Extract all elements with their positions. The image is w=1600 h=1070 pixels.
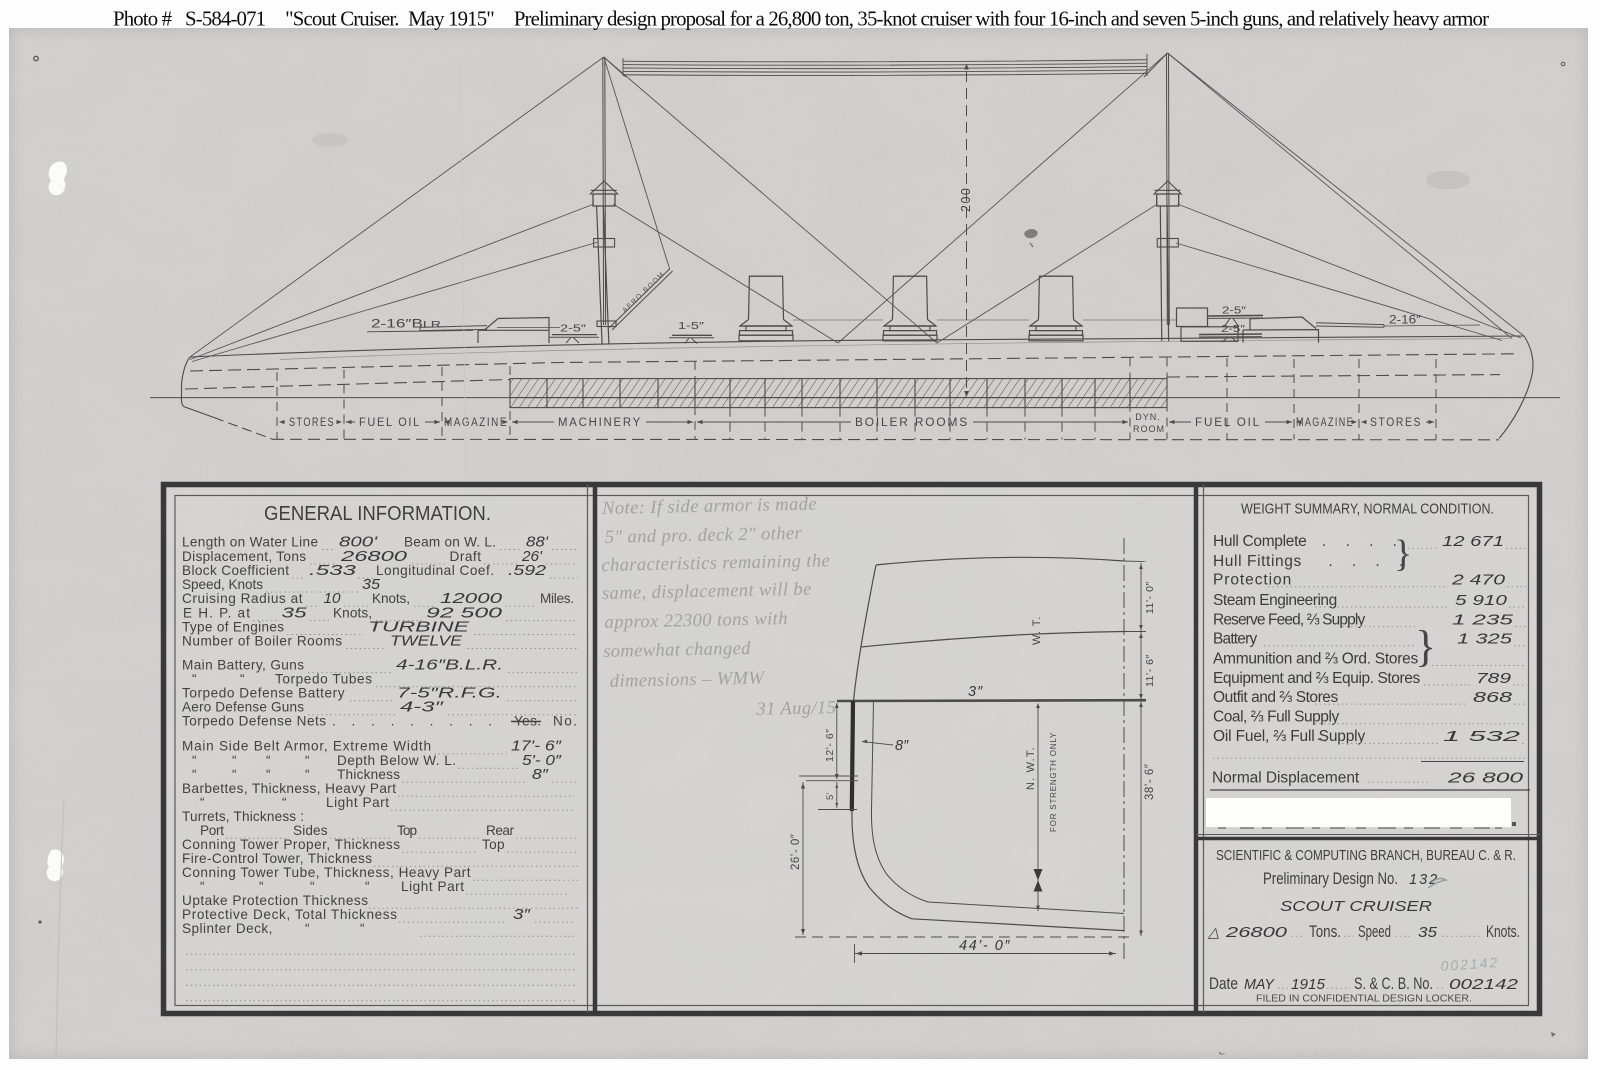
svg-text:Splinter Deck,: Splinter Deck, — [182, 921, 272, 936]
svg-text:GENERAL INFORMATION.: GENERAL INFORMATION. — [264, 503, 491, 525]
svg-text:Type of Engines: Type of Engines — [182, 619, 284, 634]
svg-text:44’- 0″: 44’- 0″ — [959, 938, 1011, 954]
svg-text:Port: Port — [200, 823, 224, 838]
svg-text:Uptake Protection Thickness: Uptake Protection Thickness — [182, 893, 368, 908]
svg-text:8″: 8″ — [895, 738, 909, 754]
svg-text:MACHINERY: MACHINERY — [558, 417, 642, 429]
svg-text:Length on Water Line: Length on Water Line — [182, 534, 318, 549]
svg-text:Torpedo Tubes: Torpedo Tubes — [275, 671, 372, 686]
svg-text:Date: Date — [1209, 975, 1238, 993]
svg-text:Knots,: Knots, — [372, 591, 410, 606]
svg-text:“: “ — [266, 767, 271, 782]
svg-text:35: 35 — [282, 605, 308, 621]
svg-text:Preliminary Design No.: Preliminary Design No. — [1263, 870, 1398, 888]
svg-text:12 671: 12 671 — [1442, 534, 1504, 550]
svg-text:Rear: Rear — [486, 823, 514, 838]
svg-text:Block Coefficient: Block Coefficient — [182, 563, 289, 578]
svg-text:“: “ — [305, 921, 310, 936]
svg-text:1 532: 1 532 — [1443, 729, 1520, 745]
svg-text:. . . . . . . . .: . . . . . . . . . — [332, 714, 492, 729]
svg-text:ROOM: ROOM — [1133, 424, 1165, 434]
svg-text:Protection: Protection — [1213, 572, 1291, 589]
svg-text:MAGAZINE: MAGAZINE — [1296, 417, 1354, 429]
svg-text:Ammunition and ⅔ Ord. Stores: Ammunition and ⅔ Ord. Stores — [1213, 650, 1418, 667]
svg-text:“: “ — [266, 753, 271, 768]
svg-text:Aero Defense Guns: Aero Defense Guns — [182, 700, 304, 715]
svg-text:“: “ — [259, 879, 264, 894]
svg-text:Coal, ⅔ Full Supply: Coal, ⅔ Full Supply — [1213, 709, 1339, 726]
svg-text:“: “ — [305, 767, 310, 782]
svg-text:Main Side Belt Armor, Extreme: Main Side Belt Armor, Extreme Width — [182, 739, 431, 754]
svg-text:Draft: Draft — [450, 549, 482, 564]
svg-text:3″: 3″ — [968, 684, 983, 700]
svg-text:“: “ — [192, 753, 197, 768]
svg-text:FOR STRENGTH ONLY: FOR STRENGTH ONLY — [1049, 732, 1058, 832]
svg-text:35: 35 — [1418, 925, 1438, 941]
svg-text:Conning Tower Proper, Thicknes: Conning Tower Proper, Thickness — [182, 837, 400, 852]
svg-text:E H. P. at: E H. P. at — [183, 605, 250, 620]
svg-text:“: “ — [282, 795, 287, 810]
svg-text:MAGAZINE: MAGAZINE — [444, 417, 508, 429]
svg-text:No.: No. — [553, 714, 577, 729]
svg-text:Top: Top — [482, 837, 505, 852]
svg-text:Tons.: Tons. — [1309, 923, 1341, 941]
svg-text:Thickness: Thickness — [337, 767, 400, 782]
svg-text:FILED IN CONFIDENTIAL DESIGN L: FILED IN CONFIDENTIAL DESIGN LOCKER. — [1256, 993, 1472, 1005]
svg-text:Speed: Speed — [1358, 923, 1391, 941]
svg-text:Light Part: Light Part — [326, 795, 389, 810]
svg-text:2 470: 2 470 — [1451, 573, 1505, 589]
svg-text:}: } — [1394, 533, 1412, 575]
svg-text:Knots,: Knots, — [333, 605, 372, 620]
svg-text:“: “ — [232, 767, 237, 782]
svg-text:“: “ — [360, 921, 365, 936]
svg-text:Turrets, Thickness :: Turrets, Thickness : — [182, 809, 304, 824]
svg-text:Knots.: Knots. — [1486, 923, 1520, 941]
svg-text:N. W.T.: N. W.T. — [1025, 746, 1037, 790]
svg-text:“: “ — [240, 671, 245, 686]
svg-text:3″: 3″ — [513, 907, 531, 923]
svg-text:2-5″: 2-5″ — [1222, 306, 1247, 317]
svg-text:200: 200 — [959, 187, 973, 212]
svg-text:Light Part: Light Part — [401, 879, 464, 894]
svg-text:11’- 6″: 11’- 6″ — [1144, 654, 1156, 687]
svg-text:Outfit and ⅔ Stores: Outfit and ⅔ Stores — [1213, 689, 1338, 706]
svg-text:38’- 6″: 38’- 6″ — [1144, 764, 1156, 800]
svg-text:Miles.: Miles. — [540, 591, 574, 606]
svg-text:Conning Tower Tube, Thickness,: Conning Tower Tube, Thickness, Heavy Par… — [182, 865, 471, 880]
svg-text:Speed, Knots: Speed, Knots — [182, 577, 263, 592]
svg-text:Main Battery, Guns: Main Battery, Guns — [182, 657, 304, 672]
svg-text:Torpedo Defense Nets: Torpedo Defense Nets — [182, 714, 326, 729]
svg-text:5 910: 5 910 — [1455, 593, 1507, 609]
svg-text:Equipment and ⅔ Equip. Stores: Equipment and ⅔ Equip. Stores — [1213, 670, 1420, 687]
svg-text:11’- 0″: 11’- 0″ — [1144, 581, 1156, 614]
svg-text:Battery: Battery — [1213, 631, 1257, 648]
svg-text:“: “ — [192, 767, 197, 782]
svg-text:Longitudinal Coef.: Longitudinal Coef. — [376, 563, 494, 578]
svg-text:1-5″: 1-5″ — [678, 321, 705, 332]
svg-text:△: △ — [1207, 925, 1219, 941]
svg-text:Photo # S-584-071 "Scout Crui: Photo # S-584-071 "Scout Cruiser. May 19… — [113, 8, 1489, 31]
svg-text:dimensions – WMW: dimensions – WMW — [610, 669, 766, 692]
svg-text:5″ and pro. deck 2″ other: 5″ and pro. deck 2″ other — [605, 524, 803, 548]
svg-text:2-16″: 2-16″ — [1389, 315, 1421, 327]
svg-text:. . . .: . . . . — [1315, 533, 1397, 550]
svg-text:STORES: STORES — [289, 417, 335, 429]
svg-text:“: “ — [200, 879, 205, 894]
svg-text:868: 868 — [1473, 690, 1512, 706]
svg-text:Barbettes, Thickness, Heavy Pa: Barbettes, Thickness, Heavy Part — [182, 781, 396, 796]
svg-text:12’- 6″: 12’- 6″ — [824, 729, 836, 762]
svg-text:STORES: STORES — [1370, 417, 1422, 429]
svg-text:Top: Top — [397, 823, 417, 838]
svg-text:8″: 8″ — [532, 767, 549, 783]
svg-text:Beam on W. L.: Beam on W. L. — [404, 534, 496, 549]
svg-text:.533: .533 — [309, 563, 356, 579]
svg-text:Reserve Feed, ⅔ Supply: Reserve Feed, ⅔ Supply — [1213, 611, 1365, 628]
svg-text:789: 789 — [1476, 671, 1511, 687]
svg-text:5’: 5’ — [825, 793, 836, 800]
svg-text:“: “ — [232, 753, 237, 768]
svg-text:Hull Fittings: Hull Fittings — [1213, 553, 1301, 570]
svg-text:26800: 26800 — [1224, 925, 1287, 941]
svg-text:Hull Complete: Hull Complete — [1213, 533, 1307, 550]
svg-text:.592: .592 — [508, 563, 546, 579]
svg-text:Fire-Control Tower, Thickness: Fire-Control Tower, Thickness — [182, 851, 372, 866]
svg-text:“: “ — [365, 879, 370, 894]
svg-text:1 325: 1 325 — [1457, 632, 1513, 648]
svg-text:FUEL OIL: FUEL OIL — [359, 417, 421, 429]
svg-text:Torpedo Defense Battery: Torpedo Defense Battery — [182, 686, 345, 701]
svg-text:Number of Boiler Rooms: Number of Boiler Rooms — [182, 633, 342, 648]
svg-text:2-16″BLR.: 2-16″BLR. — [371, 319, 445, 331]
svg-text:W. T.: W. T. — [1031, 616, 1043, 645]
svg-text:SCOUT CRUISER: SCOUT CRUISER — [1280, 899, 1433, 915]
svg-text:Oil Fuel, ⅔ Full Supply: Oil Fuel, ⅔ Full Supply — [1213, 728, 1365, 745]
svg-text:1915: 1915 — [1291, 977, 1326, 993]
svg-text:MAY: MAY — [1244, 977, 1275, 993]
svg-text:Steam Engineering: Steam Engineering — [1213, 592, 1337, 609]
svg-text:SCIENTIFIC & COMPUTING BRANCH,: SCIENTIFIC & COMPUTING BRANCH, BUREAU C.… — [1216, 847, 1516, 864]
svg-text:26 800: 26 800 — [1446, 771, 1523, 787]
svg-text:26’- 0″: 26’- 0″ — [790, 834, 802, 870]
svg-text:002142: 002142 — [1449, 977, 1518, 993]
svg-text:2-5″: 2-5″ — [560, 324, 587, 335]
svg-text:Normal Displacement: Normal Displacement — [1212, 770, 1360, 787]
svg-text:BOILER ROOMS: BOILER ROOMS — [855, 417, 969, 429]
svg-text:Displacement, Tons: Displacement, Tons — [182, 549, 306, 564]
svg-text:1 235: 1 235 — [1452, 612, 1515, 628]
svg-text:Depth Below W. L.: Depth Below W. L. — [337, 753, 456, 768]
svg-text:Cruising Radius at: Cruising Radius at — [182, 591, 303, 606]
svg-text:Sides: Sides — [293, 823, 328, 838]
svg-text:“: “ — [192, 671, 197, 686]
svg-text:. . . .: . . . . — [1309, 553, 1403, 570]
svg-text:approx 22300 tons with: approx 22300 tons with — [604, 609, 788, 633]
svg-text:“: “ — [305, 753, 310, 768]
svg-text:somewhat changed: somewhat changed — [603, 639, 751, 662]
svg-text:DYN.: DYN. — [1135, 412, 1161, 422]
svg-text:Protective Deck, Total Thickne: Protective Deck, Total Thickness — [182, 907, 397, 922]
svg-text:2-5″: 2-5″ — [1221, 324, 1246, 335]
svg-text:}: } — [1415, 622, 1436, 671]
svg-text:S. & C. B. No.: S. & C. B. No. — [1354, 975, 1433, 993]
svg-text:FUEL OIL: FUEL OIL — [1195, 417, 1261, 429]
svg-text:4-16″B.L.R.: 4-16″B.L.R. — [396, 657, 503, 673]
svg-text:“: “ — [200, 795, 205, 810]
svg-text:TWELVE: TWELVE — [390, 633, 462, 649]
svg-text:31 Aug/15: 31 Aug/15 — [755, 698, 836, 720]
svg-text:“: “ — [310, 879, 315, 894]
svg-text:WEIGHT SUMMARY, NORMAL COND: WEIGHT SUMMARY, NORMAL CONDITION. — [1241, 502, 1494, 518]
